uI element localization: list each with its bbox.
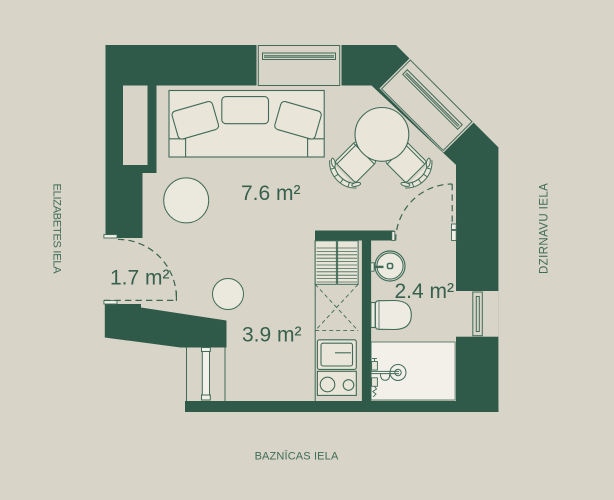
- svg-text:BAZNĪCAS IELA: BAZNĪCAS IELA: [255, 451, 339, 463]
- svg-text:2.4 m²: 2.4 m²: [395, 280, 455, 303]
- svg-text:DZIRNAVU IELA: DZIRNAVU IELA: [539, 183, 551, 274]
- svg-text:ELIZABETES IELA: ELIZABETES IELA: [51, 184, 63, 275]
- svg-text:7.6 m²: 7.6 m²: [241, 182, 301, 205]
- svg-text:3.9 m²: 3.9 m²: [242, 324, 302, 347]
- svg-text:1.7 m²: 1.7 m²: [110, 266, 170, 289]
